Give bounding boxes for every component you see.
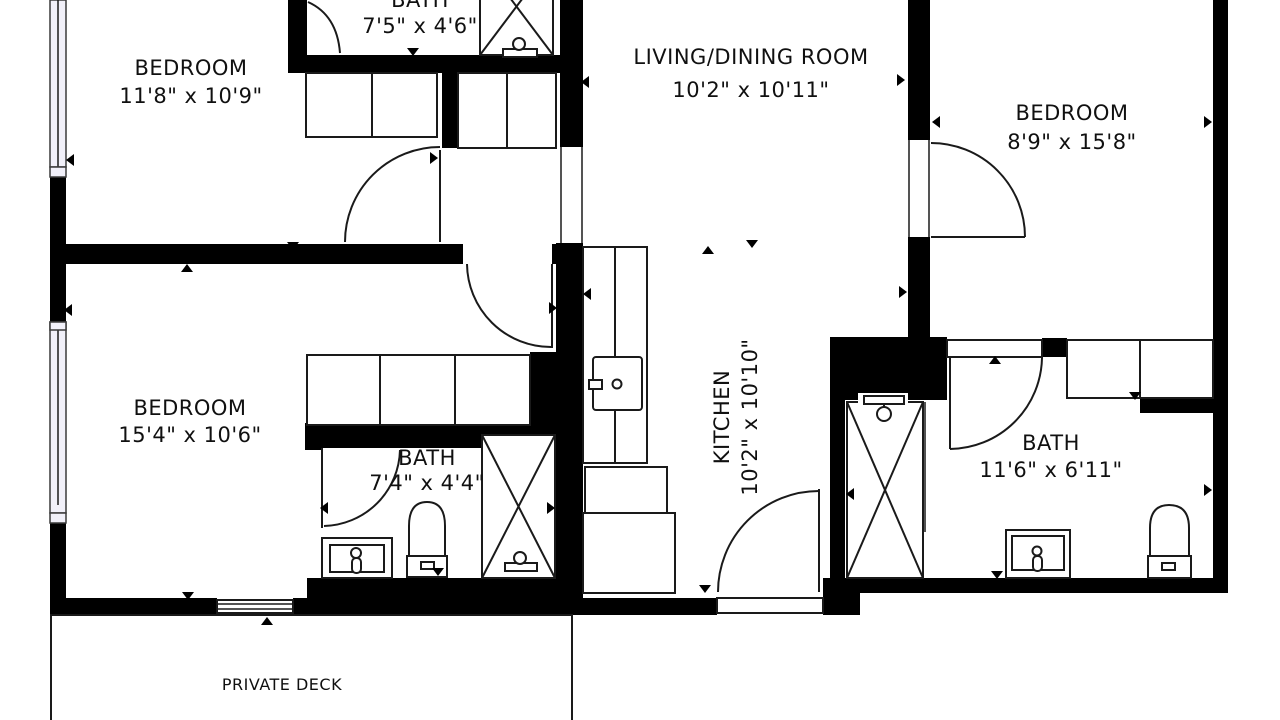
room-name: BEDROOM xyxy=(133,396,246,420)
label-bath-middle: BATH 7'4" x 4'4" xyxy=(369,446,485,495)
room-dims: 11'6" x 6'11" xyxy=(979,458,1122,482)
dimension-marker xyxy=(1204,116,1212,128)
bath-right-threshold xyxy=(947,340,1042,357)
closet-hall-left xyxy=(306,73,437,137)
dishwasher-icon xyxy=(585,467,667,513)
dimension-marker xyxy=(261,617,273,625)
door-bath-top xyxy=(308,2,340,53)
window-top-left-bedroom xyxy=(50,0,66,177)
dimension-marker xyxy=(746,240,758,248)
room-dims: 10'2" x 10'11" xyxy=(672,78,829,102)
room-dims: 8'9" x 15'8" xyxy=(1007,130,1136,154)
private-deck-outline xyxy=(51,615,572,720)
room-name: BEDROOM xyxy=(1015,101,1128,125)
dimension-marker xyxy=(407,48,419,56)
door-hall-closet xyxy=(345,147,440,242)
sink-middle-icon xyxy=(322,538,392,578)
dimension-marker xyxy=(1204,484,1212,496)
room-dims: 15'4" x 10'6" xyxy=(118,423,261,447)
shower-right-icon xyxy=(847,393,925,578)
label-private-deck: PRIVATE DECK xyxy=(222,675,342,694)
door-mid-bedroom xyxy=(467,264,552,348)
label-living-dining: LIVING/DINING ROOM 10'2" x 10'11" xyxy=(633,45,868,102)
dimension-marker xyxy=(932,116,940,128)
room-name: KITCHEN xyxy=(710,370,734,465)
dimension-marker xyxy=(899,286,907,298)
room-name: LIVING/DINING ROOM xyxy=(633,45,868,69)
room-dims: 7'5" x 4'6" xyxy=(362,14,478,38)
shower-top-icon xyxy=(480,0,553,57)
closet-hall-right xyxy=(458,73,556,148)
room-name: BEDROOM xyxy=(134,56,247,80)
label-kitchen: KITCHEN 10'2" x 10'10" xyxy=(710,338,762,495)
dimension-marker xyxy=(897,74,905,86)
kitchen-exterior-threshold xyxy=(717,598,823,613)
label-bedroom-top-left: BEDROOM 11'8" x 10'9" xyxy=(119,56,262,108)
dimension-marker xyxy=(181,264,193,272)
label-bath-right: BATH 11'6" x 6'11" xyxy=(979,431,1122,482)
closet-right-bedroom xyxy=(1067,340,1213,398)
dimension-marker xyxy=(702,246,714,254)
floor-plan-canvas: BEDROOM 11'8" x 10'9" BATH 7'5" x 4'6" L… xyxy=(0,0,1280,720)
toilet-middle-icon xyxy=(407,502,447,577)
floor-plan: BEDROOM 11'8" x 10'9" BATH 7'5" x 4'6" L… xyxy=(0,0,1280,720)
label-bath-top: BATH 7'5" x 4'6" xyxy=(362,0,478,38)
sliding-door-deck xyxy=(217,600,293,613)
shower-middle-icon xyxy=(482,435,555,578)
room-name: BATH xyxy=(398,446,456,470)
room-dims: 10'2" x 10'10" xyxy=(738,338,762,495)
sink-right-icon xyxy=(1006,530,1070,578)
label-bedroom-mid-left: BEDROOM 15'4" x 10'6" xyxy=(118,396,261,447)
closet-mid-bedroom xyxy=(307,355,530,425)
dimension-marker xyxy=(66,154,74,166)
kitchen-counter-icon xyxy=(583,247,675,593)
room-name: BATH xyxy=(1022,431,1080,455)
fridge-icon xyxy=(583,513,675,593)
door-bedroom-right xyxy=(931,143,1025,237)
room-name: BATH xyxy=(391,0,449,12)
dimension-marker xyxy=(991,571,1003,579)
dimension-marker xyxy=(699,585,711,593)
room-dims: 11'8" x 10'9" xyxy=(119,84,262,108)
toilet-right-icon xyxy=(1148,505,1191,578)
dimension-marker xyxy=(430,152,438,164)
window-mid-left-bedroom xyxy=(50,322,66,523)
room-dims: 7'4" x 4'4" xyxy=(369,471,485,495)
door-kitchen-exterior xyxy=(718,489,819,592)
label-bedroom-right: BEDROOM 8'9" x 15'8" xyxy=(1007,101,1136,154)
